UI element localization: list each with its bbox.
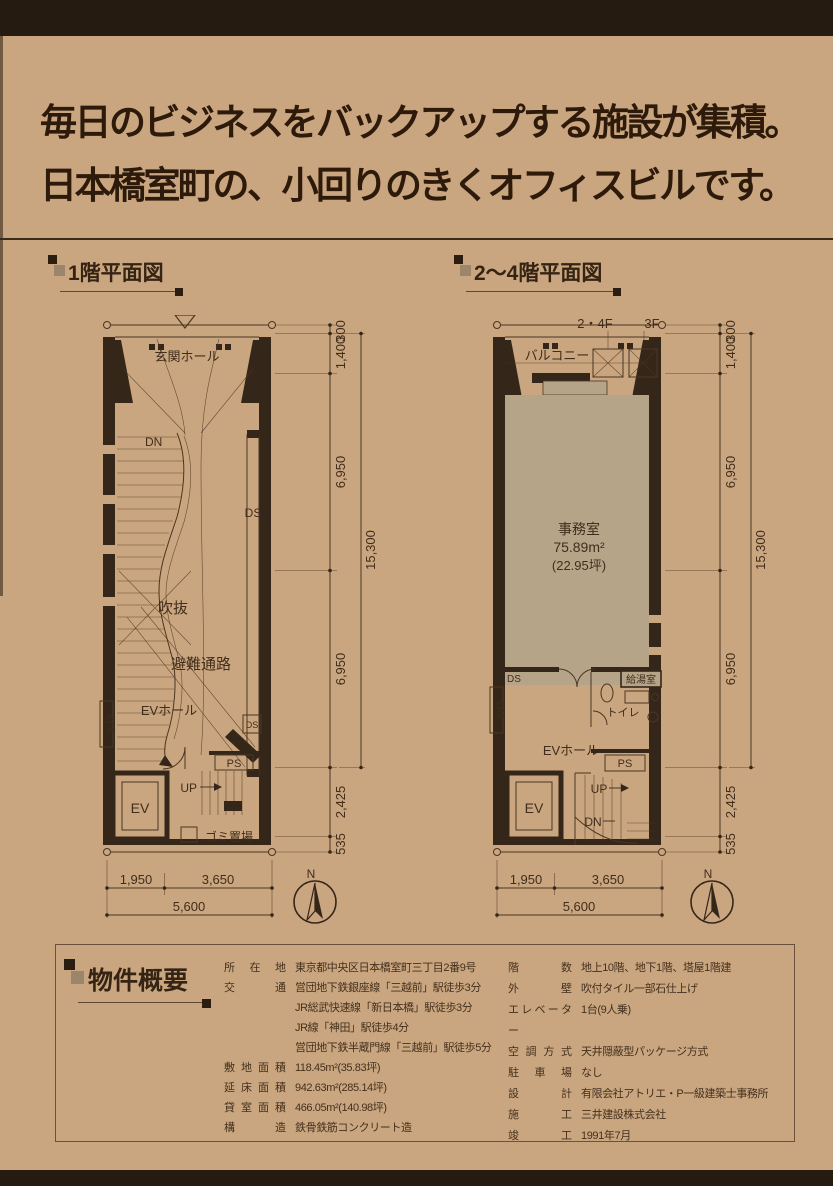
spec-value: 営団地下鉄半蔵門線「三越前」駅徒歩5分 [295, 1038, 492, 1058]
overview-title-text: 物件概要 [88, 967, 188, 995]
spec-label: 交通 [224, 978, 286, 998]
plan2-title-text: 2〜4階平面図 [474, 262, 602, 285]
spec-value: 有限会社アトリエ・P一級建築士事務所 [581, 1084, 768, 1105]
toilet-label: トイレ [607, 707, 640, 719]
plan2-property-line: 2・4F 3F [493, 316, 666, 349]
spec-label: 所在地 [224, 958, 286, 978]
dim-6950: 6,950 [723, 653, 738, 686]
dim-3650: 3,650 [202, 872, 235, 887]
spec-value: 942.63m²(285.14坪) [295, 1078, 387, 1098]
ps-label: PS [618, 758, 633, 770]
north-compass-icon: N [691, 867, 733, 923]
headline-line2: 日本橋室町の、小回りのきくオフィスビルです。 [40, 155, 810, 218]
spec-label: 外壁 [508, 979, 572, 1000]
plan2-ev: EV [507, 773, 561, 839]
spec-label: 竣工 [508, 1126, 572, 1147]
dim-6950: 6,950 [723, 456, 738, 489]
plan1-atrium: 吹抜 [119, 571, 191, 645]
dn-label: DN [145, 435, 162, 449]
plan1-title: 1階平面図 [60, 257, 180, 292]
plan1-ev: EV [113, 773, 167, 839]
spec-value: なし [581, 1063, 602, 1084]
spec-value: 466.05m²(140.98坪) [295, 1098, 387, 1118]
spec-label [224, 1038, 286, 1058]
north-compass-icon: N [294, 867, 336, 923]
spec-value: 東京都中央区日本橋室町三丁目2番9号 [295, 958, 476, 978]
spec-label: 敷地面積 [224, 1058, 286, 1078]
dn-label: DN [584, 815, 601, 829]
plan2-dim-chain: 300 1,400 6,950 6,950 2,425 535 15,300 [665, 320, 768, 855]
floor-24f-label: 2・4F [577, 316, 612, 331]
plan1-entrance: 玄関ホール [123, 339, 253, 755]
dim-535: 535 [333, 833, 348, 855]
spec-label: 駐車場 [508, 1063, 572, 1084]
spec-row: 階数地上10階、地下1階、塔屋1階建 [508, 958, 790, 979]
spec-row: JR総武快速線「新日本橋」駅徒歩3分 [224, 998, 508, 1018]
spec-row: 設計有限会社アトリエ・P一級建築士事務所 [508, 1084, 790, 1105]
spec-label [224, 998, 286, 1018]
dim-1400: 1,400 [723, 337, 738, 370]
spec-label: 延床面積 [224, 1078, 286, 1098]
spec-value: 地上10階、地下1階、塔屋1階建 [581, 958, 731, 979]
spec-row: 貸室面積466.05m²(140.98坪) [224, 1098, 508, 1118]
plan1-dim-bottom: 1,950 3,650 5,600 [105, 860, 274, 918]
spec-row: 営団地下鉄半蔵門線「三越前」駅徒歩5分 [224, 1038, 508, 1058]
title-square-icon [64, 959, 75, 970]
plan2-stair: UP DN [575, 773, 657, 845]
spec-row: 外壁吹付タイル一部石仕上げ [508, 979, 790, 1000]
spec-row: 構造鉄骨鉄筋コンクリート造 [224, 1118, 508, 1138]
ps-label: PS [227, 758, 242, 770]
plan2-property-line-bottom [493, 849, 666, 856]
spec-value: 三井建設株式会社 [581, 1105, 666, 1126]
ev-label: EV [131, 800, 150, 816]
dim-15300: 15,300 [753, 530, 768, 570]
dim-2425: 2,425 [723, 786, 738, 819]
spec-row: 竣工1991年7月 [508, 1126, 790, 1147]
spec-label: 階数 [508, 958, 572, 979]
spec-row: JR線「神田」駅徒歩4分 [224, 1018, 508, 1038]
evac-route-label: 避難通路 [171, 656, 231, 673]
overview-right-column: 階数地上10階、地下1階、塔屋1階建 外壁吹付タイル一部石仕上げ エレベーター1… [508, 958, 790, 1147]
office-area-label: 75.89m² [553, 539, 605, 555]
spec-row: 施工三井建設株式会社 [508, 1105, 790, 1126]
spec-label: エレベーター [508, 1000, 572, 1042]
title-square-icon [48, 255, 57, 264]
spec-value: JR線「神田」駅徒歩4分 [295, 1018, 409, 1038]
title-square-icon [54, 265, 65, 276]
spec-row: 交通営団地下鉄銀座線「三越前」駅徒歩3分 [224, 978, 508, 998]
headline: 毎日のビジネスをバックアップする施設が集積。 日本橋室町の、小回りのきくオフィス… [40, 92, 810, 218]
balcony-label: バルコニー [525, 348, 590, 363]
plan1-property-line-bottom [103, 849, 276, 856]
up-label: UP [591, 782, 608, 796]
floor-3f-label: 3F [644, 316, 659, 331]
entrance-hall-label: 玄関ホール [154, 349, 219, 364]
up-label: UP [180, 781, 197, 795]
garbage-label: ゴミ置場 [205, 829, 253, 844]
dim-15300: 15,300 [363, 530, 378, 570]
dim-2425: 2,425 [333, 786, 348, 819]
property-overview-box: 物件概要 所在地東京都中央区日本橋室町三丁目2番9号 交通営団地下鉄銀座線「三越… [55, 944, 795, 1142]
spec-value: JR総武快速線「新日本橋」駅徒歩3分 [295, 998, 472, 1018]
eps-label: EPS [495, 701, 505, 719]
plan1-dim-chain: 300 1,400 6,950 6,950 2,425 535 15,300 [275, 320, 378, 855]
title-square-icon [202, 999, 211, 1008]
plan2-dim-bottom: 1,950 3,650 5,600 [495, 860, 664, 918]
ev-hall-label: EVホール [543, 743, 599, 758]
spec-value: 営団地下鉄銀座線「三越前」駅徒歩3分 [295, 978, 481, 998]
ds-label: DS [507, 674, 521, 685]
dim-6950: 6,950 [333, 653, 348, 686]
spec-value: 1台(9人乗) [581, 1000, 631, 1042]
title-square-icon [460, 265, 471, 276]
ev-label: EV [525, 800, 544, 816]
title-square-icon [71, 971, 84, 984]
plan1-walls [103, 337, 271, 845]
office-tsubo-label: (22.95坪) [552, 558, 606, 573]
entrance-mark-icon [175, 315, 195, 328]
spec-row: エレベーター1台(9人乗) [508, 1000, 790, 1042]
dim-535: 535 [723, 833, 738, 855]
spec-row: 空調方式天井隠蔽型パッケージ方式 [508, 1042, 790, 1063]
bottom-border-band [0, 1170, 833, 1186]
overview-title: 物件概要 [78, 961, 208, 1003]
plan1-property-line [103, 315, 276, 329]
ds-small-label: DS [246, 720, 259, 730]
office-label: 事務室 [558, 521, 600, 537]
brochure-page: 毎日のビジネスをバックアップする施設が集積。 日本橋室町の、小回りのきくオフィス… [0, 0, 833, 1186]
atrium-label: 吹抜 [158, 600, 188, 617]
compass-n-label: N [704, 867, 713, 881]
spec-value: 吹付タイル一部石仕上げ [581, 979, 698, 1000]
title-square-icon [613, 288, 621, 296]
spec-label: 構造 [224, 1118, 286, 1138]
floor-plan-1f: 玄関ホール DN DS 吹抜 避難通路 EVホール EPS D [97, 315, 397, 940]
dim-3650: 3,650 [592, 872, 625, 887]
plan1-core: EVホール EPS DS PS UP [100, 701, 261, 815]
dim-5600: 5,600 [173, 899, 206, 914]
spec-label: 設計 [508, 1084, 572, 1105]
plan1-title-text: 1階平面図 [68, 262, 164, 285]
spec-label: 施工 [508, 1105, 572, 1126]
ds-shaft-label: DS [245, 506, 262, 520]
headline-line1: 毎日のビジネスをバックアップする施設が集積。 [40, 92, 810, 155]
spec-label: 空調方式 [508, 1042, 572, 1063]
kitchen-label: 給湯室 [626, 673, 656, 686]
spec-value: 1991年7月 [581, 1126, 631, 1147]
spec-row: 駐車場なし [508, 1063, 790, 1084]
spec-row: 敷地面積118.45m²(35.83坪) [224, 1058, 508, 1078]
spec-row: 延床面積942.63m²(285.14坪) [224, 1078, 508, 1098]
title-square-icon [454, 255, 463, 264]
top-border-band [0, 0, 833, 36]
plan2-office: 事務室 75.89m² (22.95坪) [505, 395, 649, 685]
spec-value: 鉄骨鉄筋コンクリート造 [295, 1118, 412, 1138]
floor-plan-24f: 2・4F 3F バルコニー 事務室 75.89m² [487, 315, 787, 940]
ev-hall-label: EVホール [141, 703, 197, 718]
dim-1400: 1,400 [333, 337, 348, 370]
spec-label: 貸室面積 [224, 1098, 286, 1118]
spec-row: 所在地東京都中央区日本橋室町三丁目2番9号 [224, 958, 508, 978]
spec-value: 118.45m²(35.83坪) [295, 1058, 380, 1078]
spec-value: 天井隠蔽型パッケージ方式 [581, 1042, 708, 1063]
dim-1950: 1,950 [510, 872, 543, 887]
scan-edge-shadow [0, 36, 3, 596]
dim-6950: 6,950 [333, 456, 348, 489]
dim-1950: 1,950 [120, 872, 153, 887]
title-square-icon [175, 288, 183, 296]
plan2-title: 2〜4階平面図 [466, 257, 618, 292]
compass-n-label: N [307, 867, 316, 881]
overview-left-column: 所在地東京都中央区日本橋室町三丁目2番9号 交通営団地下鉄銀座線「三越前」駅徒歩… [224, 958, 508, 1138]
headline-divider [0, 238, 833, 240]
eps-label: EPS [105, 715, 115, 733]
dim-5600: 5,600 [563, 899, 596, 914]
spec-label [224, 1018, 286, 1038]
